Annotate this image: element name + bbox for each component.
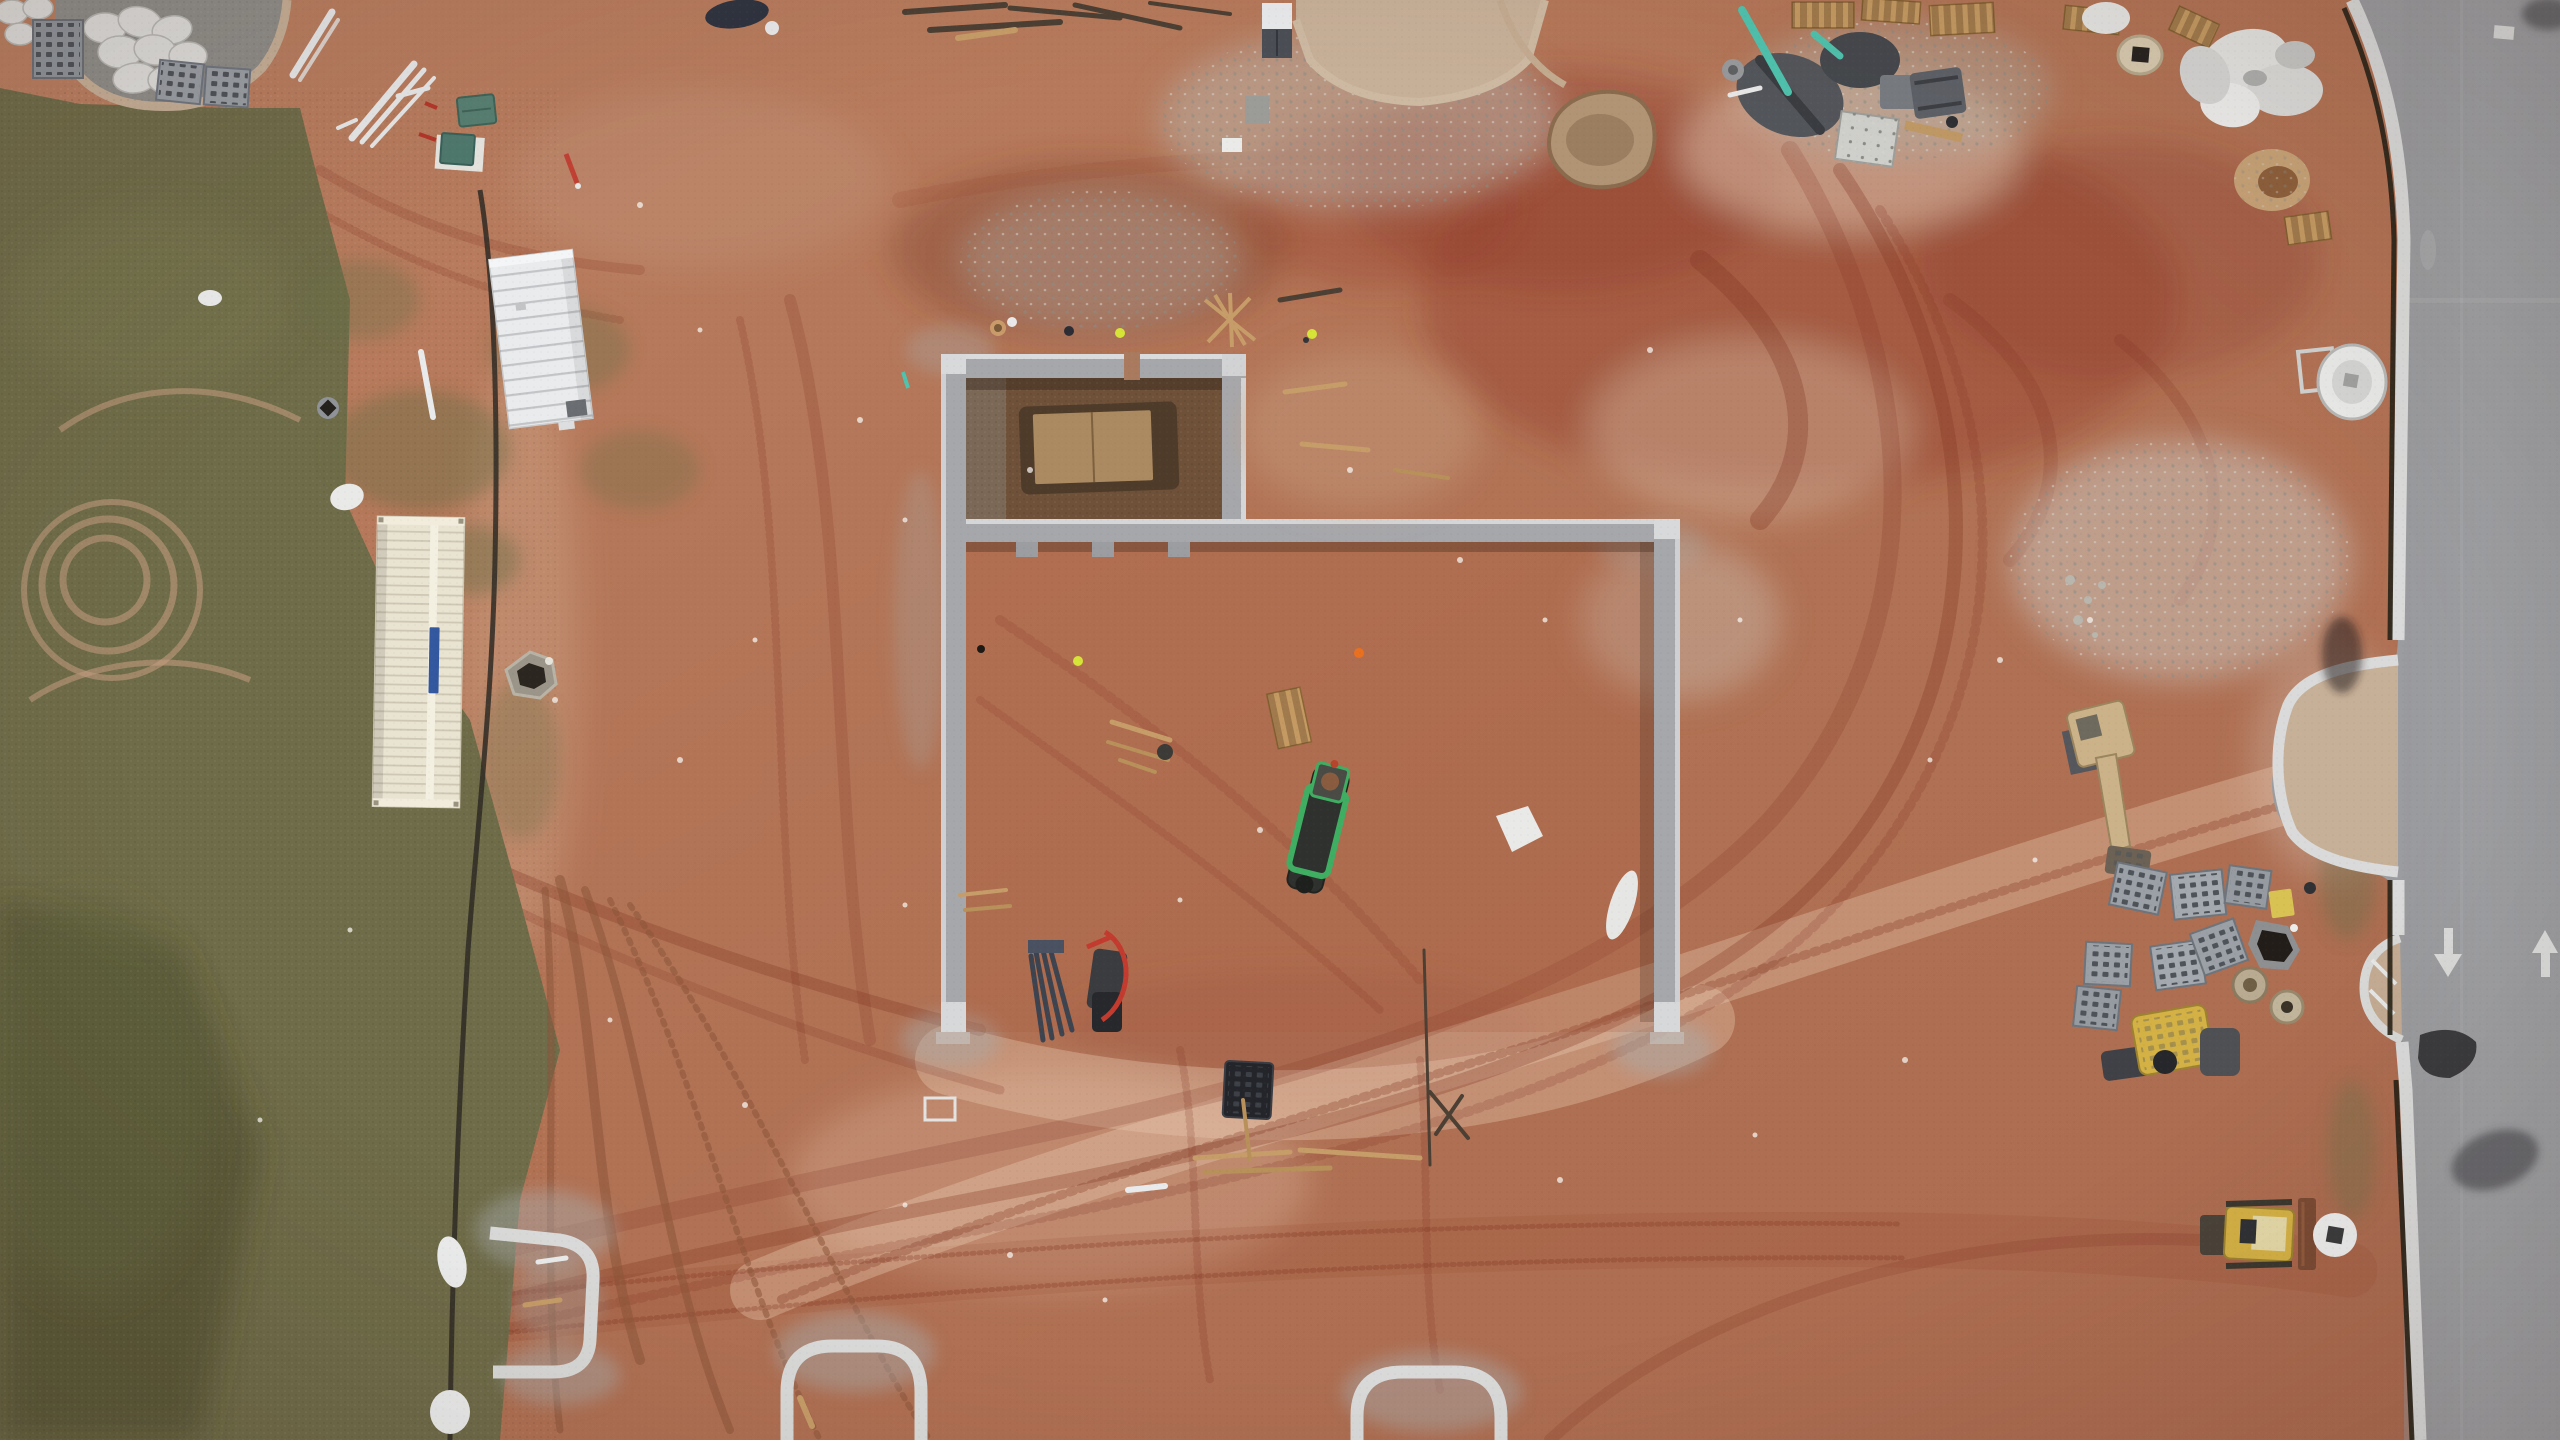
construction-site-aerial-photo bbox=[0, 0, 2560, 1440]
vignette bbox=[0, 0, 2560, 1440]
aerial-photo-canvas bbox=[0, 0, 2560, 1440]
